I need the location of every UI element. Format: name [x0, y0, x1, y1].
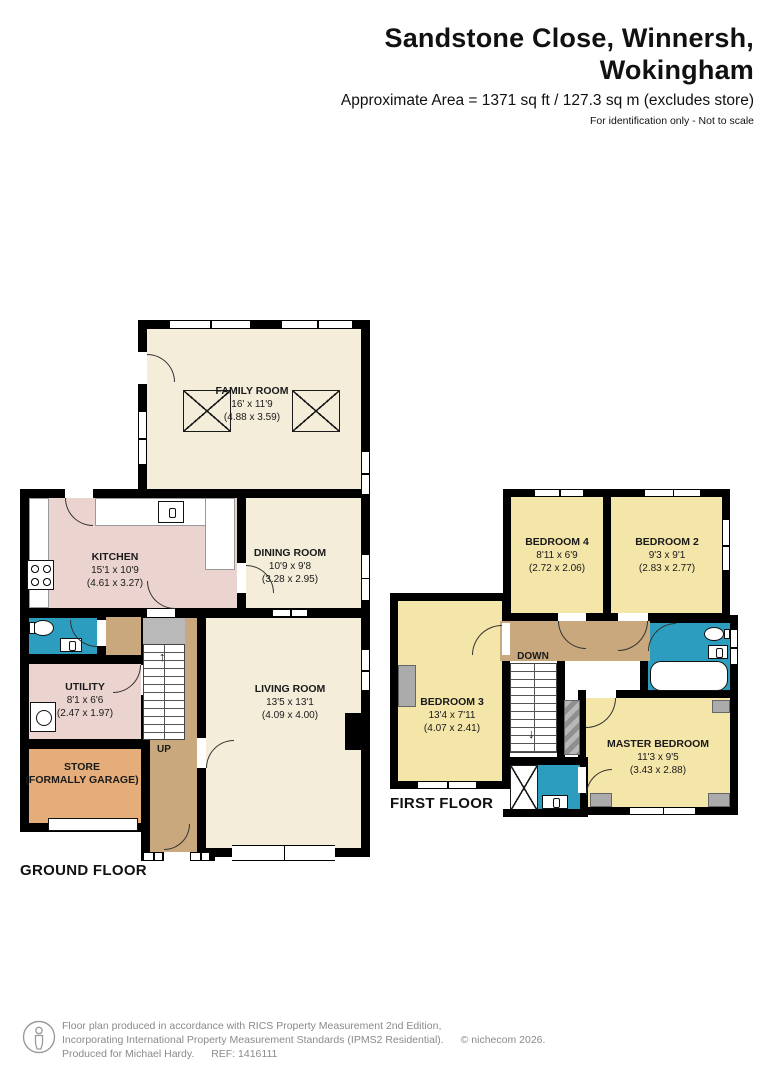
bedroom3-label: BEDROOM 3 13'4 x 7'11 (4.07 x 2.41) [420, 693, 484, 737]
hob-icon [27, 560, 54, 590]
window [730, 630, 738, 664]
stairs-up-label: UP [143, 744, 185, 755]
bedroom2-label: BEDROOM 2 9'3 x 9'1 (2.83 x 2.77) [635, 533, 699, 577]
first-floor-plan: DOWN ↓ BEDROOM 4 8'11 x 6'9 (2.72 x 2.06… [390, 475, 746, 827]
master-bedroom-label: MASTER BEDROOM 11'3 x 9'5 (3.43 x 2.88) [626, 735, 690, 779]
door-opening [65, 489, 93, 498]
window [418, 781, 476, 789]
door-opening [147, 609, 175, 617]
first-floor-label: FIRST FLOOR [390, 795, 493, 812]
wall [503, 757, 588, 765]
footer-text: Floor plan produced in accordance with R… [62, 1019, 722, 1061]
living-room-label: LIVING ROOM 13'5 x 13'1 (4.09 x 4.00) [258, 680, 322, 724]
page-title: Sandstone Close, Winnersh, Wokingham [230, 22, 754, 86]
toilet-icon [704, 627, 724, 641]
door-opening [586, 690, 616, 698]
disclaimer: For identification only - Not to scale [230, 115, 754, 127]
ground-floor-plan: ↑ UP FAMILY ROOM 16' x 11'9 (4.88 x 3.59… [20, 320, 372, 882]
wardrobe [712, 700, 730, 713]
store-label: STORE (FORMALLY GARAGE) [50, 758, 114, 790]
door-opening [618, 613, 648, 621]
window [645, 489, 700, 497]
bedroom4-label: BEDROOM 4 8'11 x 6'9 (2.72 x 2.06) [525, 533, 589, 577]
wardrobe [708, 793, 730, 807]
door-opening [237, 563, 246, 593]
window [361, 650, 370, 690]
front-door-opening [164, 852, 190, 861]
garage-door [48, 818, 138, 831]
door-opening [138, 352, 147, 384]
cupboard [564, 700, 580, 755]
reference-number: REF: 1416111 [211, 1048, 277, 1060]
window [144, 852, 162, 861]
stairs-down-label: DOWN [505, 651, 561, 662]
door-opening [97, 620, 106, 646]
footer-line1: Floor plan produced in accordance with R… [62, 1019, 722, 1033]
door-opening [558, 613, 586, 621]
door-opening [578, 767, 586, 793]
wardrobe [398, 665, 416, 707]
approximate-area: Approximate Area = 1371 sq ft / 127.3 sq… [230, 92, 754, 110]
stairs-up-arrow-icon: ↑ [159, 650, 166, 663]
sink-icon [542, 795, 568, 809]
floorplan-page: { "header": { "title": "Sandstone Close,… [0, 0, 764, 1080]
kitchen-sink-icon [158, 501, 184, 523]
copyright: © nichecom 2026. [461, 1034, 546, 1046]
family-room-label: FAMILY ROOM 16' x 11'9 (4.88 x 3.59) [220, 382, 284, 426]
window [535, 489, 583, 497]
wall [503, 809, 588, 817]
stairs-down-arrow-icon: ↓ [528, 727, 535, 740]
person-icon [22, 1018, 58, 1058]
window [138, 412, 147, 464]
ground-floor-label: GROUND FLOOR [20, 862, 147, 879]
window [282, 320, 352, 329]
kitchen-counter [29, 498, 49, 608]
window [361, 452, 370, 494]
utility-label: UTILITY 8'1 x 6'6 (2.47 x 1.97) [53, 678, 117, 722]
kitchen-label: KITCHEN 15'1 x 10'9 (4.61 x 3.27) [83, 548, 147, 592]
kitchen-counter [205, 498, 235, 570]
rooflight-icon [292, 390, 340, 432]
dining-room-label: DINING ROOM 10'9 x 9'8 (3.28 x 2.95) [258, 544, 322, 588]
bathtub-icon [650, 661, 728, 691]
door-opening [197, 738, 206, 768]
bay-window [232, 845, 335, 861]
footer-line3: Produced for Michael Hardy. REF: 1416111 [62, 1047, 722, 1061]
toilet-cistern-icon [29, 622, 35, 634]
opening [273, 609, 307, 617]
stair-landing [143, 618, 185, 644]
chimney-breast [345, 713, 361, 750]
window [170, 320, 250, 329]
window [361, 555, 370, 600]
wardrobe [590, 793, 612, 807]
window [630, 807, 695, 815]
header: Sandstone Close, Winnersh, Wokingham App… [230, 22, 754, 127]
shower-icon [510, 765, 538, 811]
window [191, 852, 209, 861]
window [722, 520, 730, 570]
sink-icon [708, 645, 728, 659]
toilet-icon [32, 620, 54, 636]
footer-line2: Incorporating International Property Mea… [62, 1033, 722, 1047]
